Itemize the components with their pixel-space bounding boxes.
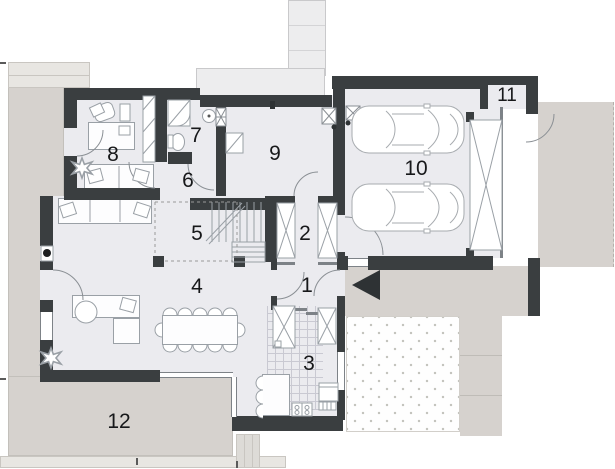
room-label-7: 7 <box>190 124 202 148</box>
room-label-8: 8 <box>107 143 119 167</box>
dim-tick-left-top <box>0 62 6 64</box>
living-sofa <box>58 198 152 224</box>
wall-study-south <box>64 188 160 200</box>
room-label-10: 10 <box>404 157 427 181</box>
window-garage-south <box>348 258 368 267</box>
wall-south-kitchen <box>232 416 343 431</box>
room-label-6: 6 <box>182 169 194 193</box>
wall-west-study-a <box>64 100 77 128</box>
wall-utility-south-b <box>318 196 345 208</box>
wall-store-left <box>480 85 488 109</box>
wall-east-kitchen-a <box>337 305 345 352</box>
wall-entry-west-b <box>271 296 277 310</box>
side-path <box>460 316 502 436</box>
wall-hall6-east <box>216 164 226 196</box>
glazing-kitchen-west <box>231 377 237 417</box>
room-label-5: 5 <box>191 222 203 246</box>
wall-east-kitchen-b <box>337 390 345 420</box>
study-sofa <box>84 164 154 190</box>
room-label-9: 9 <box>269 142 281 166</box>
dim-tick-bottom-a <box>136 458 138 465</box>
room-label-12: 12 <box>107 410 130 434</box>
kitchen-slider-b <box>306 312 318 315</box>
entry-walkway <box>345 266 529 316</box>
room-label-4: 4 <box>191 275 203 299</box>
driveway-right <box>538 102 614 267</box>
wall-west-living-c <box>40 300 53 312</box>
wall-store-top <box>488 76 538 85</box>
wall-north-a <box>64 88 200 100</box>
wall-garage-north <box>332 76 488 89</box>
wall-study-east <box>155 100 167 162</box>
window-kitchen-east <box>337 352 345 390</box>
corner-sofa-b <box>113 318 140 344</box>
wall-garage-west <box>333 89 345 197</box>
steps-top-left <box>8 62 90 88</box>
corner-sofa-a <box>72 295 140 318</box>
dim-tick-left-bottom <box>0 378 6 380</box>
window-living-west <box>40 312 53 340</box>
kitchen-counter <box>262 374 290 416</box>
stair-post-east <box>234 256 245 267</box>
wall-south-living <box>40 370 160 382</box>
wall-west-living-b <box>40 261 53 270</box>
wall-bath-utility <box>216 100 226 164</box>
partition-2-1-b <box>318 262 337 265</box>
wall-garage-south-b <box>368 256 493 270</box>
wall-stairs-east <box>265 196 277 262</box>
roof-eave-band <box>196 68 325 97</box>
wall-stairs-north <box>190 198 265 210</box>
room-label-2: 2 <box>299 222 311 246</box>
dining-table <box>162 315 238 345</box>
room-label-11: 11 <box>497 85 517 107</box>
kitchen-side-steps <box>236 434 260 468</box>
wall-west-living-a <box>40 196 53 246</box>
garage-door-post-top <box>466 112 474 122</box>
wall-garage-east-light <box>500 107 503 258</box>
wall-east-entry-b <box>337 296 345 305</box>
room-label-3: 3 <box>303 352 315 376</box>
dim-tick-bottom-b <box>236 461 238 468</box>
patio-dotted <box>346 316 460 432</box>
stair-post-west <box>153 256 164 267</box>
wall-store-right <box>526 85 538 114</box>
floor-plan: 1 2 3 4 5 6 7 8 9 10 11 12 <box>0 0 615 469</box>
wall-bath-south <box>168 152 192 164</box>
partition-2-1-a <box>277 262 295 265</box>
chimney <box>288 0 326 76</box>
fence-post <box>528 258 540 316</box>
kitchen-slider-a <box>295 308 307 311</box>
glazing-living-south <box>160 372 233 378</box>
room-label-1: 1 <box>301 274 313 298</box>
garage-door-post-bottom <box>466 248 474 258</box>
